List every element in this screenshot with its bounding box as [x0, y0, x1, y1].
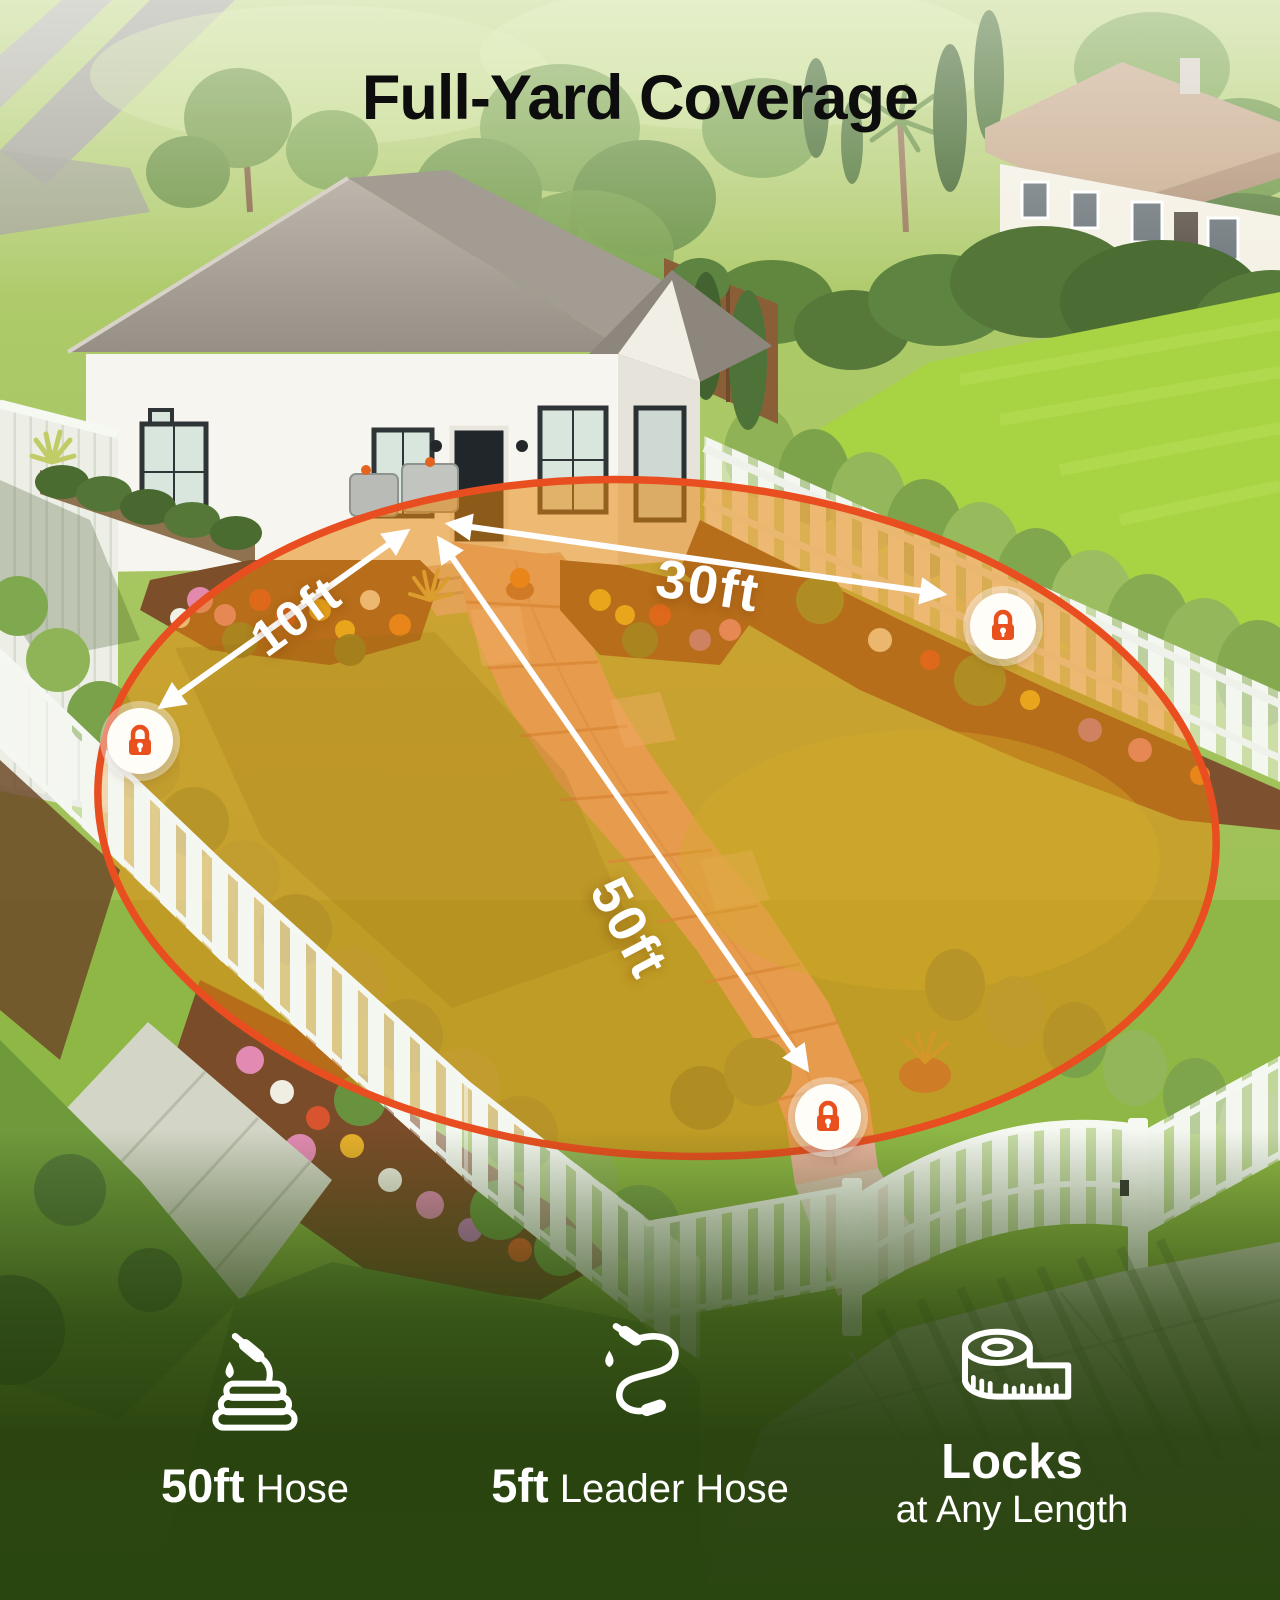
page-title: Full-Yard Coverage — [0, 62, 1280, 134]
lock-icon — [970, 593, 1036, 659]
feature-label: Locks at Any Length — [896, 1435, 1128, 1532]
lock-icon — [795, 1084, 861, 1150]
feature-leader-hose: 5ft Leader Hose — [491, 1322, 789, 1513]
feature-label: 50ft Hose — [161, 1458, 349, 1513]
lock-icon — [107, 708, 173, 774]
feature-locks-any-length: Locks at Any Length — [896, 1321, 1128, 1532]
leader-hose-icon — [585, 1322, 695, 1432]
hose-reel-icon — [200, 1322, 310, 1432]
feature-hose-length: 50ft Hose — [161, 1322, 349, 1513]
full-yard-coverage-graphic: Full-Yard Coverage 10ft 30ft 50ft — [0, 0, 1280, 1600]
tape-measure-icon — [952, 1321, 1072, 1417]
feature-label: 5ft Leader Hose — [491, 1458, 789, 1513]
